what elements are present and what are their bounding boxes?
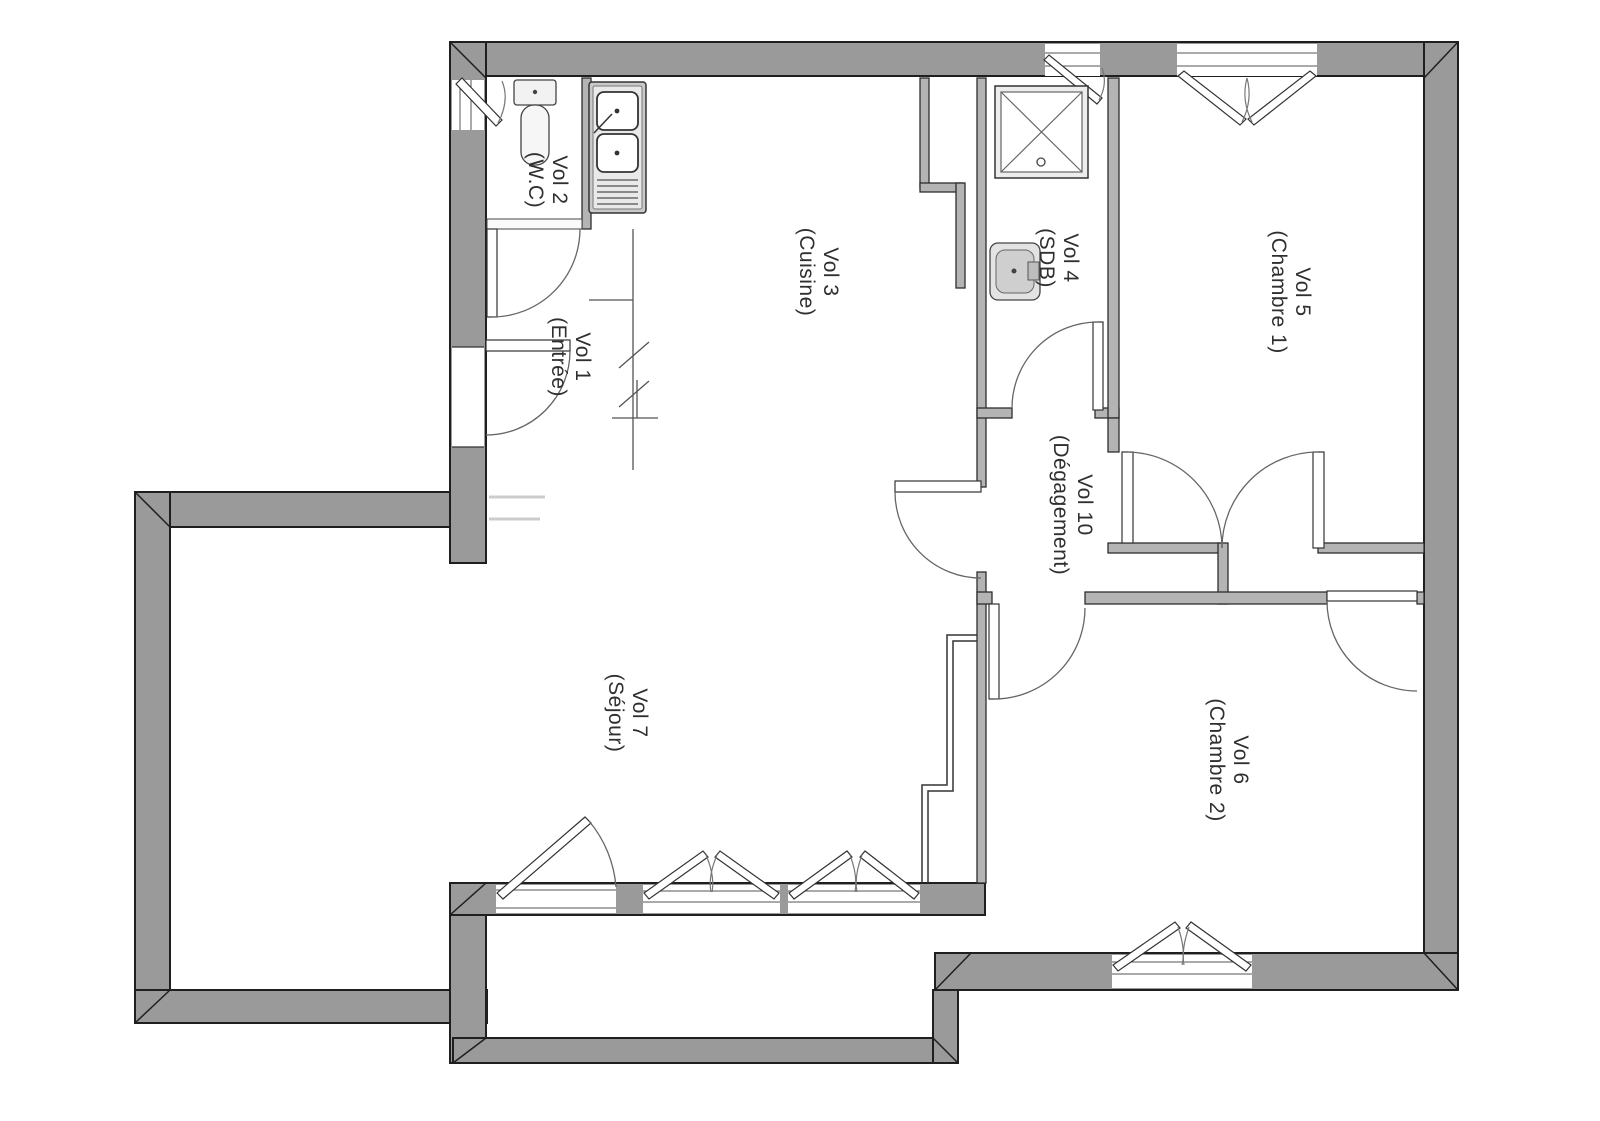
- chambre2-window: [1112, 922, 1252, 988]
- room-name: (Dégagement): [1048, 435, 1072, 575]
- sdb-door: [1012, 322, 1103, 410]
- chambre1-door: [1122, 452, 1222, 548]
- room-label-sdb: Vol 4 (SDB): [1034, 228, 1082, 288]
- room-label-sejour: Vol 7 (Séjour): [603, 674, 651, 753]
- wc-door: [487, 229, 580, 317]
- room-name: (Cuisine): [794, 228, 818, 317]
- washbasin-fixture: [990, 243, 1040, 300]
- room-label-wc: Vol 2 (W.C): [523, 152, 571, 208]
- degagement-door: [895, 481, 981, 578]
- room-name: (Séjour): [603, 674, 627, 753]
- room-name: (SDB): [1034, 228, 1058, 288]
- room-label-degagement: Vol 10 (Dégagement): [1048, 435, 1096, 575]
- chambre1-closet-door: [1222, 452, 1324, 548]
- chambre2-west-door: [989, 604, 1085, 699]
- chambre2-east-door: [1327, 591, 1417, 691]
- room-label-chambre2: Vol 6 (Chambre 2): [1204, 698, 1252, 821]
- room-label-chambre1: Vol 5 (Chambre 1): [1266, 230, 1314, 353]
- room-volume: Vol 1: [570, 317, 594, 397]
- floor-plan-drawing: [0, 0, 1600, 1121]
- erased-smudge: [489, 497, 545, 519]
- room-volume: Vol 4: [1058, 228, 1082, 288]
- room-name: (W.C): [523, 152, 547, 208]
- room-volume: Vol 5: [1290, 230, 1314, 353]
- room-volume: Vol 7: [627, 674, 651, 753]
- wc-window: [452, 78, 505, 130]
- room-volume: Vol 3: [818, 228, 842, 317]
- floor-plan: Vol 2 (W.C) Vol 1 (Entrée) Vol 3 (Cuisin…: [0, 0, 1600, 1121]
- shower-fixture: [995, 86, 1088, 178]
- room-label-entree: Vol 1 (Entrée): [546, 317, 594, 397]
- kitchen-sink-fixture: [589, 82, 646, 213]
- room-label-cuisine: Vol 3 (Cuisine): [794, 228, 842, 317]
- room-volume: Vol 6: [1228, 698, 1252, 821]
- sejour-door: [496, 817, 616, 913]
- room-name: (Chambre 2): [1204, 698, 1228, 821]
- room-volume: Vol 10: [1072, 435, 1096, 575]
- chambre1-window: [1177, 44, 1317, 125]
- annotation-marks: [589, 229, 658, 470]
- room-name: (Chambre 1): [1266, 230, 1290, 353]
- jogged-partition: [922, 635, 977, 883]
- room-volume: Vol 2: [547, 152, 571, 208]
- room-name: (Entrée): [546, 317, 570, 397]
